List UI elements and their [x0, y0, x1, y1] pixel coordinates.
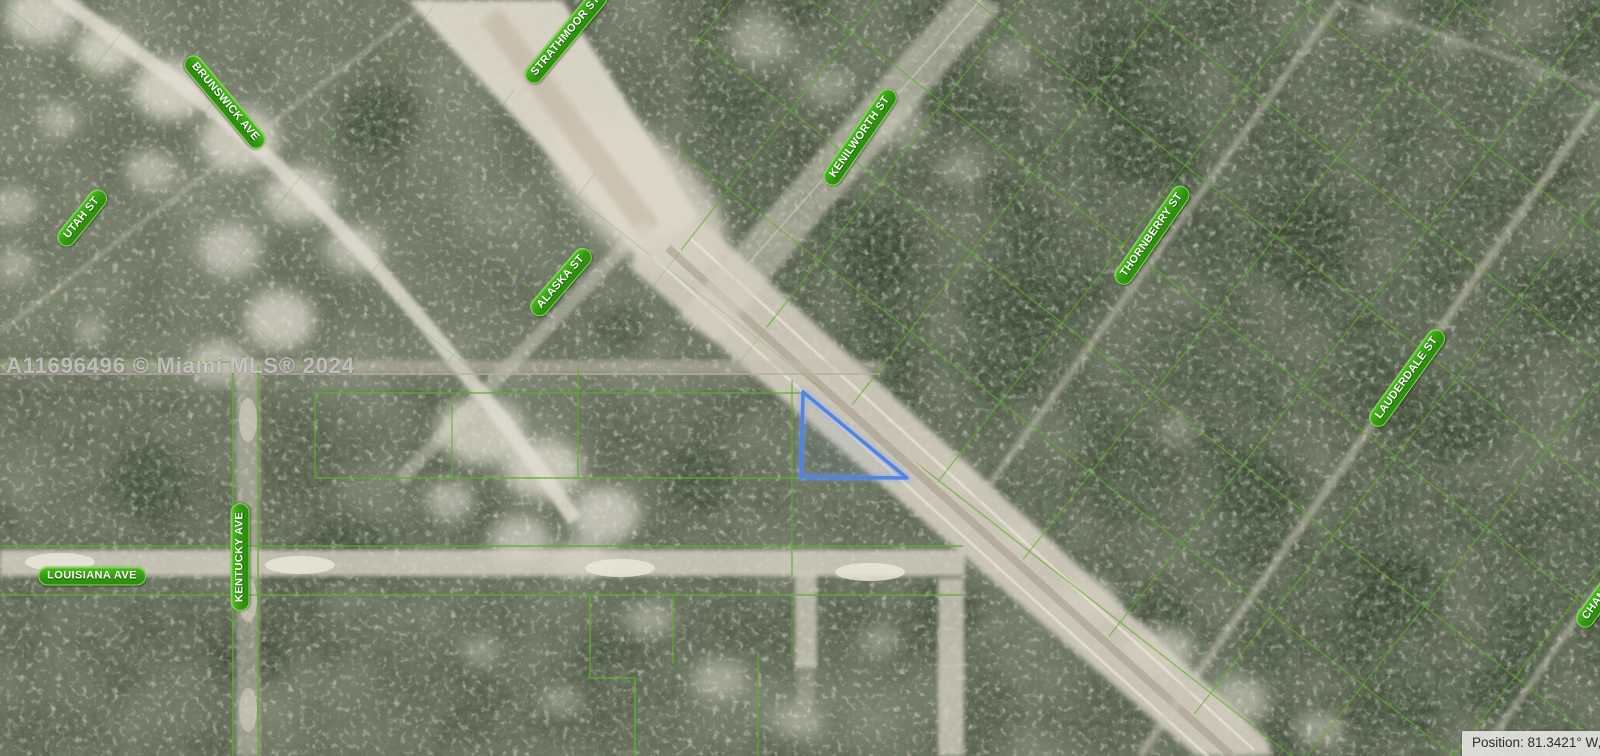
position-indicator: Position: 81.3421° W, 2 — [1462, 731, 1600, 756]
street-label-louisiana-ave: LOUISIANA AVE — [38, 567, 146, 586]
aerial-map[interactable]: BRUNSWICK AVE UTAH ST STRATHMOOR ST ALAS… — [0, 0, 1600, 756]
position-text: Position: 81.3421° W, 2 — [1472, 735, 1600, 750]
mls-watermark: A11696496 © Miami MLS® 2024 — [6, 353, 355, 379]
street-label-kentucky-ave: KENTUCKY AVE — [231, 503, 250, 611]
